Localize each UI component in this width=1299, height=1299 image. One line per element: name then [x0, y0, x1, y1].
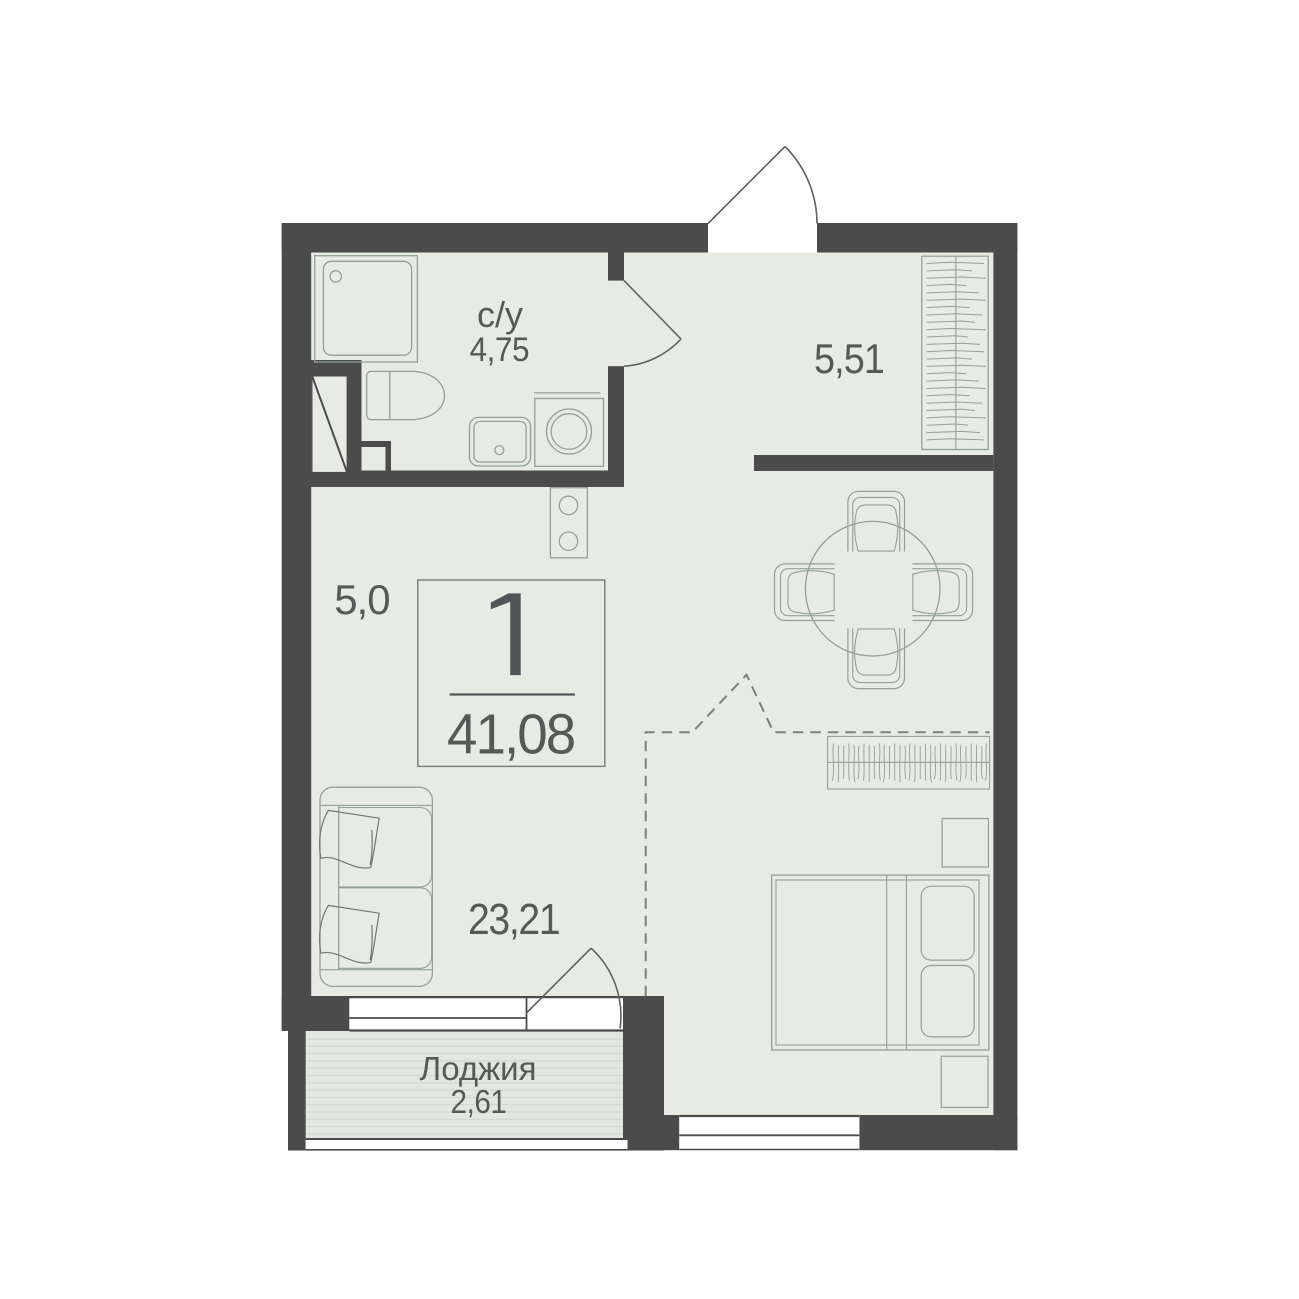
svg-text:5,0: 5,0 [334, 576, 389, 623]
svg-text:41,08: 41,08 [447, 701, 574, 765]
svg-text:5,51: 5,51 [814, 336, 884, 382]
svg-text:23,21: 23,21 [468, 894, 560, 944]
svg-text:Лоджия: Лоджия [420, 1050, 537, 1087]
svg-text:2,61: 2,61 [451, 1084, 507, 1121]
svg-text:4,75: 4,75 [469, 330, 529, 368]
svg-text:с/у: с/у [477, 294, 523, 335]
